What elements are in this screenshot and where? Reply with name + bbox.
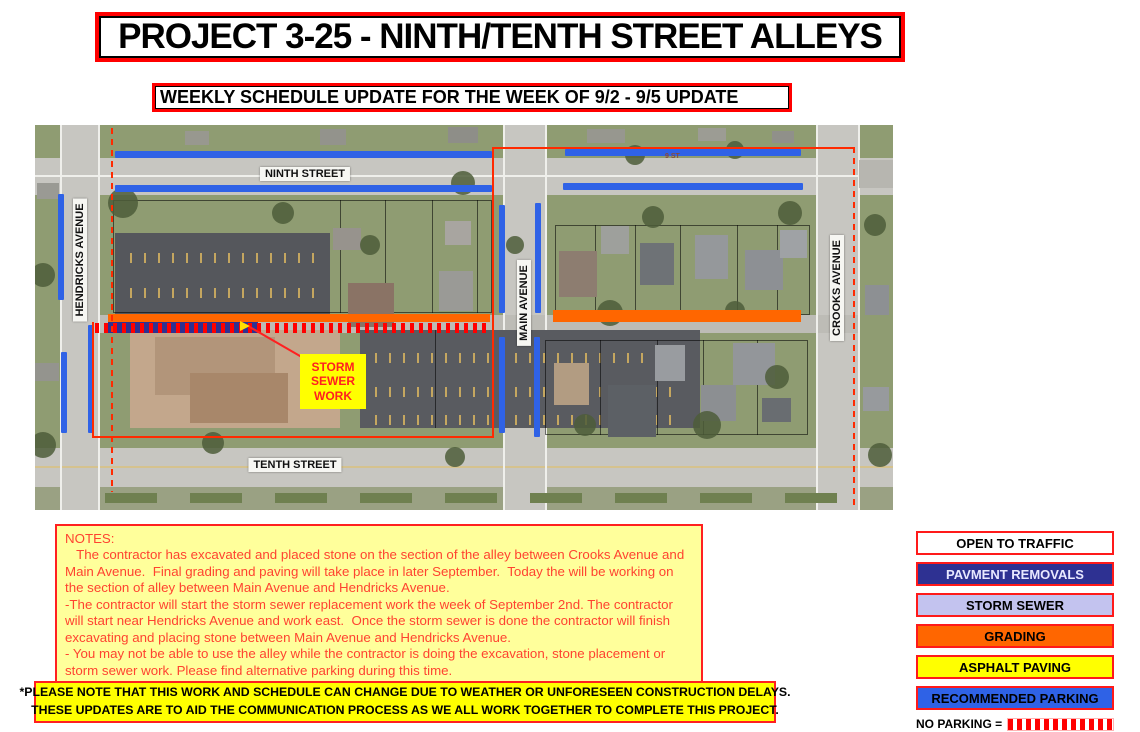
building [587,129,625,143]
crooks-avenue-label: CROOKS AVENUE [830,235,844,341]
recommended-parking-bar [499,205,505,313]
building [445,221,471,245]
parcel-line [600,340,601,435]
tree [360,235,380,255]
disclaimer-line: *PLEASE NOTE THAT THIS WORK AND SCHEDULE… [19,684,790,702]
tree [765,365,789,389]
building [554,363,589,405]
tenth-street-label: TENTH STREET [248,458,341,472]
hedge [105,493,157,503]
building [320,129,346,145]
building [772,131,794,143]
tree [35,432,56,458]
building [185,131,209,145]
parcel-line [435,330,436,428]
parcel-line [477,200,478,313]
hedge [700,493,752,503]
no-parking-label: NO PARKING = [916,717,1002,731]
page-title: PROJECT 3-25 - NINTH/TENTH STREET ALLEYS [95,12,905,62]
storm-sewer-callout: STORM SEWER WORK [300,354,366,409]
building [780,230,807,258]
legend: OPEN TO TRAFFICPAVMENT REMOVALSSTORM SEW… [916,531,1114,731]
notes-box: NOTES: The contractor has excavated and … [55,524,703,688]
legend-item: ASPHALT PAVING [916,655,1114,679]
hendricks-avenue-label: HENDRICKS AVENUE [73,198,87,321]
no-parking-dash-swatch [1007,718,1114,731]
disclaimer-box: *PLEASE NOTE THAT THIS WORK AND SCHEDULE… [34,681,776,723]
project-boundary-line [853,147,855,508]
project-boundary-line [92,322,94,436]
legend-item: STORM SEWER [916,593,1114,617]
parcel-outline [113,200,492,313]
legend-item: PAVMENT REMOVALS [916,562,1114,586]
legend-item: RECOMMENDED PARKING [916,686,1114,710]
tree [574,414,596,436]
recommended-parking-bar [534,337,540,437]
tree [272,202,294,224]
hedge [445,493,497,503]
parcel-line [432,200,433,313]
project-boundary-line [492,147,853,149]
main-avenue-label: MAIN AVENUE [517,260,531,346]
building [655,345,685,381]
project-boundary-line [92,436,494,438]
recommended-parking-bar [563,183,803,190]
tree [693,411,721,439]
page-subtitle: WEEKLY SCHEDULE UPDATE FOR THE WEEK OF 9… [152,83,792,112]
building [863,387,889,411]
building [559,251,597,297]
tree [642,206,664,228]
hedge [785,493,837,503]
building [35,363,59,381]
tree [778,201,802,225]
disclaimer-line: THESE UPDATES ARE TO AID THE COMMUNICATI… [31,702,779,720]
tree [868,443,892,467]
building [762,398,791,422]
building [37,183,59,199]
hedge [190,493,242,503]
recommended-parking-bar [58,194,64,300]
recommended-parking-bar [61,352,67,433]
tree [35,263,55,287]
tree [864,214,886,236]
building [601,226,629,254]
notes-paragraph: - You may not be able to use the alley w… [65,646,693,679]
recommended-parking-bar [565,149,801,156]
ninth-street-small-sign: 9 ST [665,153,680,160]
building [608,385,656,437]
building [695,235,728,279]
tree [445,447,465,467]
building [859,160,893,188]
hedge [530,493,582,503]
building [640,243,674,285]
legend-item: OPEN TO TRAFFIC [916,531,1114,555]
aerial-map: NINTH STREET TENTH STREET HENDRICKS AVEN… [35,125,893,510]
parcel-line [340,200,341,313]
recommended-parking-bar [499,337,505,433]
hedge [360,493,412,503]
building [865,285,889,315]
notes-paragraph: The contractor has excavated and placed … [65,547,693,596]
parcel-line [635,225,636,315]
tree [506,236,524,254]
no-parking-dashes [95,323,488,333]
building [698,128,726,141]
building [745,250,783,290]
grading-bar [553,310,801,322]
callout-arrow-icon [240,321,250,331]
building [448,127,478,143]
grading-bar [108,314,490,322]
legend-no-parking-row: NO PARKING = [916,717,1114,731]
legend-items: OPEN TO TRAFFICPAVMENT REMOVALSSTORM SEW… [916,531,1114,710]
recommended-parking-bar [115,185,492,192]
hedge [275,493,327,503]
project-boundary-line [492,147,494,437]
hedge [615,493,667,503]
ninth-street-label: NINTH STREET [260,167,350,181]
legend-item: GRADING [916,624,1114,648]
recommended-parking-bar [115,151,492,158]
parcel-line [680,225,681,315]
building [333,228,361,250]
notes-title: NOTES: [65,531,693,547]
recommended-parking-bar [535,203,541,313]
notes-paragraph: -The contractor will start the storm sew… [65,597,693,646]
building [439,271,473,311]
